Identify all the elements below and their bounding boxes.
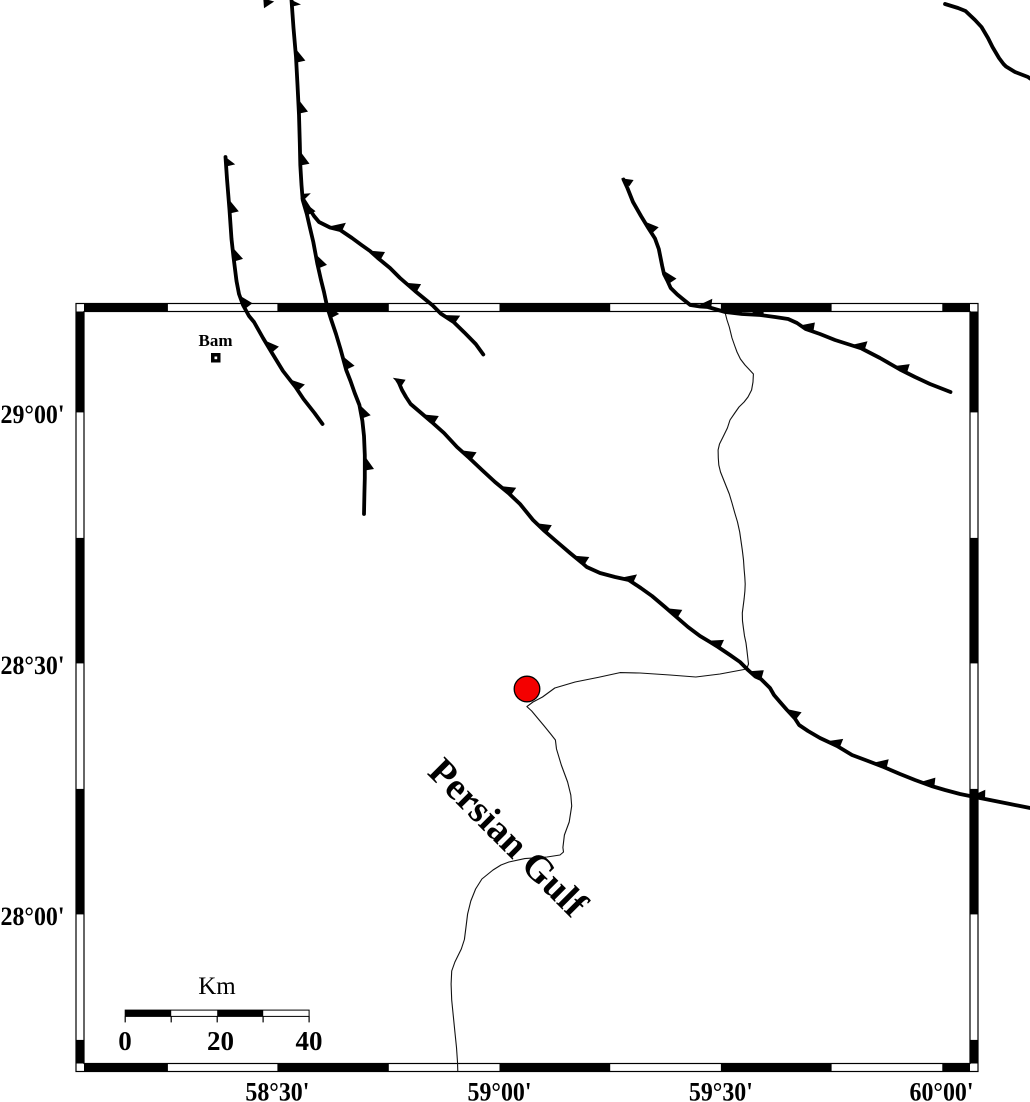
svg-text:59°30': 59°30'	[689, 1077, 753, 1102]
svg-text:28°00': 28°00'	[1, 902, 65, 931]
svg-text:58°30': 58°30'	[245, 1077, 309, 1102]
svg-text:60°00': 60°00'	[910, 1077, 974, 1102]
svg-text:59°00': 59°00'	[468, 1077, 532, 1102]
svg-text:0: 0	[118, 1026, 132, 1056]
svg-text:Bam: Bam	[199, 331, 233, 350]
svg-text:40: 40	[296, 1026, 323, 1056]
svg-text:29°00': 29°00'	[1, 400, 65, 429]
svg-text:20: 20	[207, 1026, 234, 1056]
svg-text:Km: Km	[198, 973, 236, 1000]
svg-text:28°30': 28°30'	[1, 651, 65, 680]
